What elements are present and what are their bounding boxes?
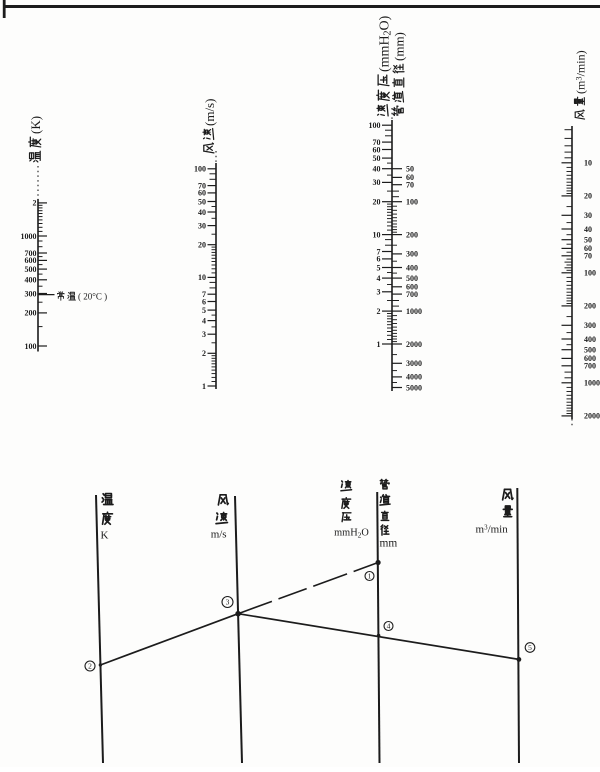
svg-text:(m3/min): (m3/min) — [574, 50, 588, 94]
svg-text:300: 300 — [584, 321, 596, 330]
svg-text:3: 3 — [377, 288, 381, 297]
svg-text:2: 2 — [33, 199, 37, 208]
svg-text:70: 70 — [406, 181, 414, 190]
svg-text:700: 700 — [25, 249, 37, 258]
svg-text:200: 200 — [406, 230, 418, 239]
svg-text:100: 100 — [584, 269, 596, 278]
svg-text:100: 100 — [369, 121, 381, 130]
svg-text:500: 500 — [25, 265, 37, 274]
svg-text:5: 5 — [202, 306, 206, 315]
svg-text:70: 70 — [584, 252, 592, 261]
svg-text:3000: 3000 — [406, 359, 422, 368]
svg-text:7: 7 — [202, 290, 206, 299]
svg-text:m/s: m/s — [211, 529, 227, 541]
svg-text:40: 40 — [198, 208, 206, 217]
svg-text:2: 2 — [202, 349, 206, 358]
svg-text:50: 50 — [373, 154, 381, 163]
svg-text:400: 400 — [584, 335, 596, 344]
svg-text:5: 5 — [528, 643, 532, 652]
svg-text:4: 4 — [377, 274, 381, 283]
svg-text:30: 30 — [373, 178, 381, 187]
svg-text:200: 200 — [25, 309, 37, 318]
svg-text:100: 100 — [25, 342, 37, 351]
svg-text:2000: 2000 — [406, 340, 422, 349]
svg-text:300: 300 — [406, 250, 418, 259]
svg-text:200: 200 — [584, 302, 596, 311]
svg-text:(mm): (mm) — [392, 32, 407, 61]
svg-text:(K): (K) — [28, 116, 43, 134]
svg-text:3: 3 — [202, 330, 206, 339]
svg-text:20: 20 — [198, 241, 206, 250]
svg-text:(m/s): (m/s) — [202, 99, 217, 126]
svg-text:( 20°C ): ( 20°C ) — [78, 292, 107, 302]
svg-text:50: 50 — [406, 165, 414, 174]
svg-text:3: 3 — [226, 598, 230, 607]
svg-text:5000: 5000 — [406, 383, 422, 392]
svg-text:30: 30 — [584, 211, 592, 220]
svg-text:1: 1 — [377, 340, 381, 349]
svg-text:1000: 1000 — [584, 379, 600, 388]
svg-text:4000: 4000 — [406, 373, 422, 382]
svg-text:2000: 2000 — [584, 412, 600, 421]
svg-text:30: 30 — [198, 221, 206, 230]
svg-text:10: 10 — [198, 273, 206, 282]
svg-text:K: K — [101, 530, 109, 542]
svg-text:4: 4 — [387, 622, 391, 631]
svg-text:300: 300 — [25, 289, 37, 298]
svg-text:7: 7 — [377, 247, 381, 256]
svg-text:1000: 1000 — [406, 307, 422, 316]
svg-text:700: 700 — [406, 290, 418, 299]
svg-text:400: 400 — [25, 276, 37, 285]
svg-text:mm: mm — [380, 538, 398, 550]
svg-text:100: 100 — [406, 198, 418, 207]
svg-text:1: 1 — [202, 382, 206, 391]
svg-text:2: 2 — [88, 662, 92, 671]
svg-text:70: 70 — [198, 181, 206, 190]
svg-text:50: 50 — [584, 236, 592, 245]
svg-text:2: 2 — [377, 307, 381, 316]
svg-text:mmH2O: mmH2O — [334, 528, 369, 540]
svg-text:1000: 1000 — [21, 232, 37, 241]
svg-text:500: 500 — [584, 346, 596, 355]
svg-text:1: 1 — [368, 572, 372, 581]
svg-text:5: 5 — [377, 263, 381, 272]
svg-text:700: 700 — [584, 362, 596, 371]
svg-text:100: 100 — [194, 165, 206, 174]
svg-text:40: 40 — [373, 165, 381, 174]
svg-text:50: 50 — [198, 197, 206, 206]
svg-text:400: 400 — [406, 263, 418, 272]
svg-text:70: 70 — [373, 138, 381, 147]
svg-text:10: 10 — [373, 230, 381, 239]
svg-text:20: 20 — [584, 192, 592, 201]
svg-text:m3/min: m3/min — [476, 524, 509, 536]
svg-text:500: 500 — [406, 274, 418, 283]
svg-text:10: 10 — [584, 159, 592, 168]
svg-text:20: 20 — [373, 198, 381, 207]
svg-text:4: 4 — [202, 316, 206, 325]
svg-text:40: 40 — [584, 225, 592, 234]
